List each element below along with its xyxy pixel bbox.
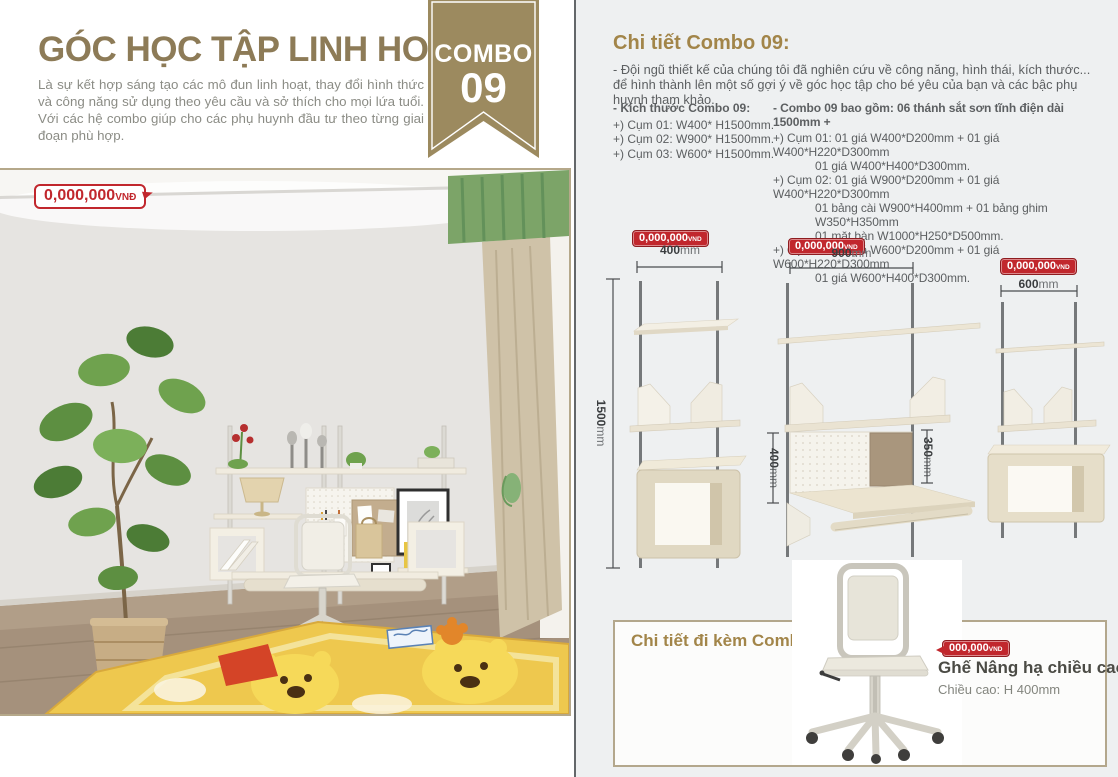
includes-line: +) Cụm 01: 01 giá W400*D200mm + 01 giá W…: [773, 131, 1103, 159]
accessory-price-currency: VND: [989, 646, 1003, 653]
includes-line: +) Cụm 02: 01 giá W900*D200mm + 01 giá W…: [773, 173, 1103, 201]
accessory-product-name: Ghế Nâng hạ chiều cao: [938, 658, 1118, 678]
sizes-heading: - Kích thước Combo 09:: [613, 101, 774, 116]
room-scene: [0, 170, 569, 714]
page-description: Là sự kết hợp sáng tạo các mô đun linh h…: [38, 76, 424, 144]
includes-line: 01 bảng cài W900*H400mm + 01 bảng ghim W…: [773, 201, 1103, 229]
sizes-item: +) Cụm 01: W400* H1500mm.: [613, 118, 774, 133]
diagram1-shelf-unit: [595, 225, 755, 575]
ribbon-combo-number: 09: [428, 64, 539, 112]
details-heading: Chi tiết Combo 09:: [613, 32, 790, 55]
accessory-price-amount: 000,000: [949, 642, 989, 654]
combo-ribbon: COMBO 09: [428, 0, 539, 158]
includes-line: 01 giá W400*H400*D300mm.: [773, 159, 1103, 173]
accessory-product-spec: Chiều cao: H 400mm: [938, 682, 1060, 697]
sizes-block: - Kích thước Combo 09: +) Cụm 01: W400* …: [613, 101, 774, 161]
room-photo: [0, 168, 571, 716]
photo-price-tag: 0,000,000VNĐ: [34, 184, 146, 209]
page-title: GÓC HỌC TẬP LINH HOẠT: [38, 30, 474, 70]
photo-price-amount: 0,000,000: [44, 187, 115, 204]
includes-heading: - Combo 09 bao gồm: 06 thánh sắt sơn tĩn…: [773, 101, 1103, 129]
diagram3-shelf-unit: [982, 252, 1118, 582]
brochure-page: GÓC HỌC TẬP LINH HOẠT Là sự kết hợp sáng…: [0, 0, 1118, 777]
accessory-chair-photo: [792, 560, 962, 765]
diagram2-desk-unit: [765, 230, 985, 570]
sizes-item: +) Cụm 03: W600* H1500mm.: [613, 147, 774, 162]
office-chair-drawing: [792, 560, 962, 765]
accessory-price-tag: 000,000VND: [942, 640, 1010, 657]
sizes-item: +) Cụm 02: W900* H1500mm.: [613, 132, 774, 147]
intro-line-1: - Đội ngũ thiết kế của chúng tôi đã nghi…: [613, 62, 1113, 77]
photo-price-currency: VNĐ: [115, 192, 136, 203]
